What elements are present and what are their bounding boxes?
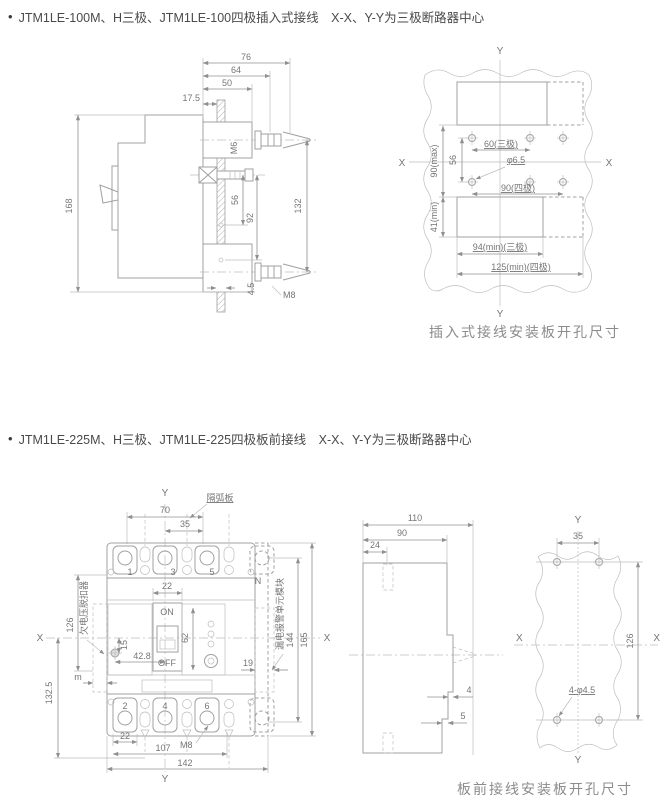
terminal-3: 3 [170,567,175,577]
axis-y-top: Y [575,515,582,526]
plug-in-side-view-drawing: 76 64 50 17.5 168 56 92 132 4.5 M6 M8 [50,48,340,338]
dim-24: 24 [370,540,380,550]
dim-dia-6-5: φ6.5 [507,155,525,165]
axis-y-top: Y [497,46,504,57]
dim-90: 90 [397,528,407,538]
upper-connector-block [203,122,252,158]
breaker-body-outline [100,115,203,278]
nameplate [142,680,212,692]
dim-42-8: 42.8 [133,651,151,661]
terminal-4: 4 [162,701,167,711]
dim-50: 50 [222,78,232,88]
dim-107: 107 [155,743,170,753]
dimensions: 60(三极) φ6.5 90(四极) 56 90(max) 41(min) 94… [429,125,583,278]
dim-22: 22 [162,581,172,591]
dim-62: 62 [180,633,190,643]
bottom-dimensions: 22 M8 107 142 [107,726,268,773]
front-wiring-panel-cutout-drawing: Y Y X X 35 126 4-φ4.5 [512,507,660,783]
axis-y-top: Y [162,488,169,499]
lower-cutout [457,197,583,237]
label-arc-barrier: 隔弧板 [206,492,233,503]
dim-132: 132 [293,198,303,213]
dim-76: 76 [241,52,251,62]
test-button [205,655,218,668]
dim-142: 142 [177,758,192,768]
section1-title-text: JTM1LE-100M、H三极、JTM1LE-100四极插入式接线 X-X、Y-… [19,7,485,26]
dim-41min: 41(min) [429,202,439,233]
top-terminals: 1 3 5 N [108,546,274,586]
dim-15: 15 [119,640,129,650]
axis-y-bottom: Y [162,774,169,785]
top-slot [383,564,393,590]
dim-168: 168 [64,198,74,213]
terminal-5: 5 [209,567,214,577]
body-profile [363,563,453,753]
dim-60-3p: 60(三极) [484,138,518,149]
label-m8: M8 [283,290,296,300]
catalog-page: • JTM1LE-100M、H三极、JTM1LE-100四极插入式接线 X-X、… [0,0,660,810]
dim-165: 165 [299,632,309,647]
dim-94min: 94(min)(三极) [473,241,528,252]
dim-125min: 125(min)(四极) [491,261,551,272]
label-undervoltage: 欠电压脱扣器 [78,581,89,635]
label-off: OFF [158,658,176,668]
dim-64: 64 [231,65,241,75]
axis-x-left: X [399,158,406,169]
section2-title-text: JTM1LE-225M、H三极、JTM1LE-225四极板前接线 X-X、Y-Y… [19,429,472,448]
dim-5: 5 [460,711,465,721]
section2-title: • JTM1LE-225M、H三极、JTM1LE-225四极板前接线 X-X、Y… [8,429,472,448]
terminal-1: 1 [127,567,132,577]
dim-56: 56 [230,195,240,205]
dim-35: 35 [573,531,583,541]
dim-m: m [74,672,82,682]
lower-connector-block [203,244,252,292]
dim-92: 92 [245,213,255,223]
dimensions: 76 64 50 17.5 168 56 92 132 4.5 M6 M8 [64,52,307,300]
axis-x-left: X [37,633,44,644]
bullet-icon: • [8,10,13,23]
label-m6: M6 [229,142,239,155]
leakage-alarm-module [255,608,274,692]
axis-y-bottom: Y [497,309,504,320]
terminal-n: N [255,576,262,586]
front-wiring-side-view-drawing: 110 90 24 4 5 [345,507,510,775]
terminal-2: 2 [122,701,127,711]
panel-wavy-outline [424,70,593,293]
mounting-holes [536,555,622,727]
dim-4: 4 [466,685,471,695]
bottom-slot [383,733,393,753]
plug-in-panel-cutout-drawing: Y Y X X 60(三极) φ6.5 [395,42,660,327]
front-wiring-front-view-drawing: Y Y X X 隔弧板 70 35 [30,478,342,788]
panel-wavy-outline [536,552,622,752]
axis-x-right: X [653,633,660,644]
label-leakage-module: 漏电报警单元模块 [274,578,285,650]
upper-cutout [457,82,583,125]
dim-126: 126 [65,617,75,632]
dim-56: 56 [448,155,458,165]
axis-y-bottom: Y [575,755,582,766]
axis-x-left: X [516,633,523,644]
axis-x-right: X [324,633,331,644]
dim-90-4p: 90(四极) [501,182,535,193]
label-m8: M8 [180,740,193,750]
dim-4-5: 4.5 [246,283,256,296]
axis-x-right: X [606,158,613,169]
m6-bolt [190,167,265,183]
dim-110: 110 [408,513,422,523]
dim-132-5: 132.5 [44,682,54,705]
undervoltage-module [93,604,107,692]
bullet-icon: • [8,432,13,445]
dim-70: 70 [160,505,170,515]
dim-126: 126 [625,633,635,648]
dim-90max: 90(max) [429,144,439,177]
dim-35: 35 [180,519,190,529]
dim-22b: 22 [120,731,130,741]
dim-17-5: 17.5 [182,93,200,103]
caption-front-wiring: 板前接线安装板开孔尺寸 [420,779,660,799]
handle [100,185,118,203]
dim-144: 144 [285,632,295,647]
caption-plug-in: 插入式接线安装板开孔尺寸 [400,322,650,342]
dim-19: 19 [243,658,253,668]
dimensions: 110 90 24 4 5 [363,513,473,723]
dim-holes: 4-φ4.5 [569,685,595,695]
section1-title: • JTM1LE-100M、H三极、JTM1LE-100四极插入式接线 X-X、… [8,7,484,26]
label-on: ON [160,607,174,617]
terminal-6: 6 [204,701,209,711]
